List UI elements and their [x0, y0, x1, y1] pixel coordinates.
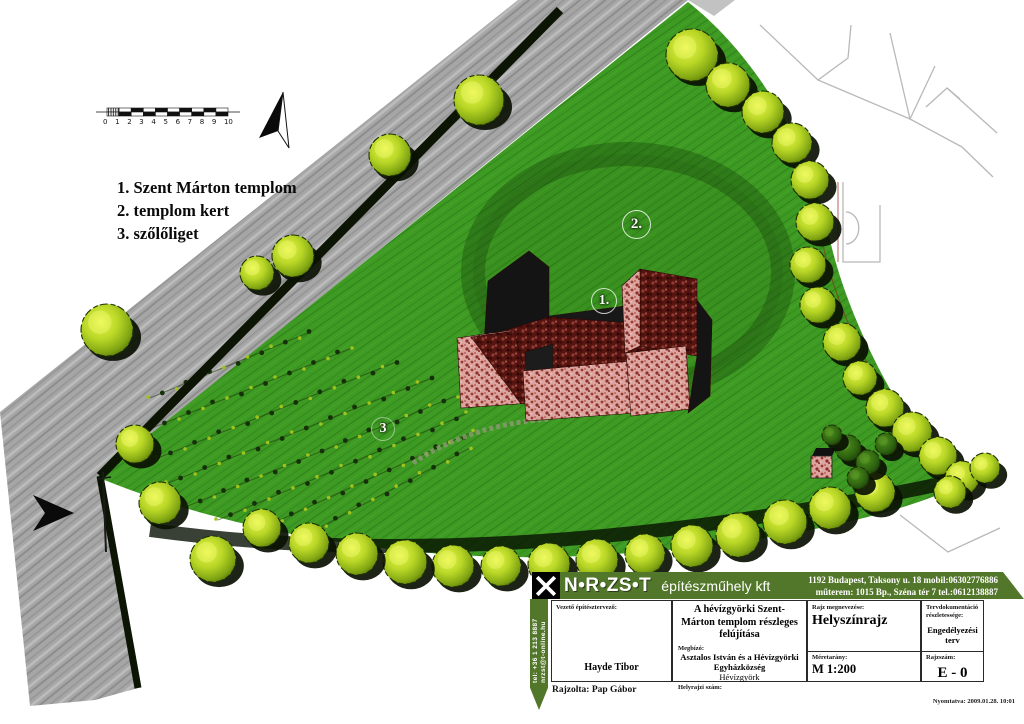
vine-plant [311, 360, 316, 365]
vine-plant [456, 395, 460, 399]
company-logo-text: N•R•ZS•T [564, 575, 651, 597]
contact-strip-tel: tel: +36 1 213 8887 [532, 603, 539, 683]
scale-cell [216, 112, 228, 116]
vine-plant [236, 361, 241, 366]
scale-label: 9 [212, 118, 216, 126]
vine-plant [368, 455, 372, 459]
vine-plant [279, 405, 283, 409]
scale-cell [168, 108, 180, 112]
legend-item: 1. Szent Márton templom [117, 176, 297, 199]
vine-plant [255, 415, 259, 419]
vine-plant [373, 473, 377, 477]
vine-plant [193, 472, 197, 476]
scale-label: 10 [224, 118, 233, 126]
vine-plant [356, 502, 361, 507]
scale-label: 0 [103, 118, 107, 126]
vine-plant [269, 411, 274, 416]
contact-strip: tel: +36 1 213 8887 nrzst@t-online.hu [530, 599, 548, 710]
vine-plant [454, 452, 459, 457]
vine-plant [280, 436, 285, 441]
vine-plant [263, 381, 268, 386]
vine-plant [441, 399, 446, 404]
north-arrow-icon [259, 92, 289, 148]
vine-plant [198, 499, 203, 504]
scale-label: 4 [151, 118, 155, 126]
scale-label: 6 [176, 118, 180, 126]
vine-plant [371, 371, 376, 376]
vine-plant [273, 470, 278, 475]
scale-label: 5 [163, 118, 167, 126]
vine-plant [339, 464, 343, 468]
vine-plant [431, 465, 436, 470]
vine-plant [350, 484, 354, 488]
address-line1: 1192 Budapest, Taksony u. 18 mobil:06302… [808, 574, 998, 586]
vine-plant [446, 460, 450, 464]
scale-cell [155, 108, 167, 112]
vine-plant [177, 417, 181, 421]
vine-plant [289, 511, 294, 516]
project-box: A hévízgyörki Szent-Márton templom részl… [672, 600, 807, 682]
legend-item: 3. szőlőliget [117, 222, 297, 245]
vine-plant [334, 445, 338, 449]
vine-plant [317, 389, 322, 394]
scale-cell [204, 112, 216, 116]
vine-plant [333, 516, 338, 521]
vine-plant [296, 459, 301, 464]
drawing-name: Helyszínrajz [812, 613, 916, 629]
outbuilding [811, 448, 836, 478]
scale-cell [107, 108, 119, 112]
vine-plant [207, 436, 211, 440]
vine-plant [304, 507, 308, 511]
lead-architect-label: Vezető építésztervező: [556, 604, 667, 612]
vine-plant [340, 491, 345, 496]
scale-cell [192, 108, 204, 112]
vine-plant [221, 488, 226, 493]
vine-plant [392, 444, 396, 448]
client-name: Asztalos István és a Hévízgyörki Egyházk… [678, 652, 801, 672]
project-title: A hévízgyörki Szent-Márton templom részl… [678, 604, 801, 642]
vine-plant [405, 386, 410, 391]
vine-plant [239, 392, 244, 397]
vine-plant [266, 441, 270, 445]
scale-cell [107, 112, 119, 116]
contact-strip-email: nrzst@t-online.hu [540, 603, 547, 683]
vine-plant [146, 395, 150, 399]
roof-plane [626, 346, 690, 416]
vine-plant [283, 340, 288, 345]
vine-plant [201, 407, 205, 411]
scale-label: 2 [127, 118, 131, 126]
vine-plant [259, 474, 263, 478]
vine-plant [202, 465, 207, 470]
vine-plant [216, 429, 221, 434]
vine-plant [309, 397, 313, 401]
plan-label-vineyard: 3 [371, 417, 395, 441]
vine-plant [217, 462, 221, 466]
vine-plant [245, 421, 250, 426]
vine-plant [333, 386, 337, 390]
scale-cell [143, 112, 155, 116]
vine-plant [328, 415, 333, 420]
vine-plant [416, 380, 420, 384]
vine-plant [231, 426, 235, 430]
legend: 1. Szent Márton templom2. templom kert3.… [117, 176, 297, 245]
company-name: építészműhely kft [661, 578, 770, 594]
scale-cell [216, 108, 228, 112]
vine-plant [324, 524, 328, 528]
lead-architect-name: Hayde Tibor [552, 662, 671, 673]
vine-plant [341, 379, 346, 384]
plan-label-church: 1. [591, 288, 617, 314]
vine-plant [256, 447, 261, 452]
vine-plant [315, 475, 319, 479]
scale-bar [96, 108, 240, 116]
vine-plant [168, 451, 173, 456]
vine-plant [381, 397, 386, 402]
doc-detail-label: Tervdokumentáció részletessége: [926, 604, 979, 619]
vine-plant [242, 451, 246, 455]
vine-plant [395, 360, 400, 365]
vine-plant [236, 485, 240, 489]
vine-plant [353, 459, 358, 464]
vine-plant [273, 375, 277, 379]
vine-plant [357, 375, 361, 379]
scale-cell [192, 112, 204, 116]
company-logo-icon [532, 572, 560, 599]
vine-plant [319, 422, 323, 426]
legend-item: 2. templom kert [117, 199, 297, 222]
vine-plant [290, 430, 294, 434]
vine-plant [214, 517, 218, 521]
scale-cell [204, 108, 216, 112]
vine-plant [305, 481, 310, 486]
vine-plant [293, 400, 298, 405]
vine-plant [350, 346, 354, 350]
vine-plant [312, 500, 317, 505]
titleblock-header: N•R•ZS•T építészműhely kft 1192 Budapest… [532, 572, 1024, 599]
address-line2: műterem: 1015 Bp., Széna tér 7 tel.:0612… [808, 586, 998, 598]
vine-plant [320, 449, 325, 454]
vine-plant [287, 371, 292, 376]
scale-value: M 1:200 [812, 662, 916, 677]
scale-label: 1 [115, 118, 119, 126]
vine-plant [225, 396, 229, 400]
vine-plant [162, 421, 167, 426]
scale-label: 7 [188, 118, 192, 126]
scale-cell [155, 112, 167, 116]
vine-plant [469, 447, 473, 451]
vine-plant [428, 403, 432, 407]
vine-plant [213, 495, 217, 499]
vine-plant [418, 471, 422, 475]
scale-bar-labels: 012345678910 [103, 118, 233, 126]
vine-plant [404, 414, 408, 418]
vine-plant [291, 486, 295, 490]
vine-plant [394, 484, 398, 488]
vine-plant [249, 386, 253, 390]
vine-plant [302, 367, 306, 371]
scale-cell [143, 108, 155, 112]
vine-plant [326, 357, 330, 361]
vine-plant [307, 329, 312, 334]
vine-plant [358, 435, 362, 439]
vine-plant [327, 496, 331, 500]
vine-plant [364, 479, 369, 484]
drawing-number-label: Rajzszám: [926, 654, 979, 662]
roof-plane [523, 361, 635, 421]
drawing-name-label: Rajz megnevezése: [812, 604, 916, 612]
vine-plant [395, 420, 400, 425]
scale-label: 3 [139, 118, 143, 126]
vine-plant [175, 387, 179, 391]
vine-plant [192, 440, 197, 445]
vine-plant [243, 509, 247, 513]
scale-cell [131, 108, 143, 112]
parcel-label: Helyrajzi szám: [678, 684, 801, 692]
vine-plant [385, 492, 390, 497]
vine-plant [267, 497, 271, 501]
vine-plant [283, 464, 287, 468]
vine-plant [454, 416, 459, 421]
vine-plant [381, 365, 385, 369]
vine-plant [440, 421, 444, 425]
vine-plant [276, 490, 281, 495]
vine-plant [304, 426, 309, 431]
vine-plant [430, 428, 435, 433]
site-plan-page: 012345678910 1. Szent Márton templom2. t… [0, 0, 1024, 724]
vine-plant [430, 376, 435, 381]
doc-detail-value: Engedélyezési terv [926, 626, 979, 645]
scale-cell [168, 112, 180, 116]
vine-plant [402, 464, 406, 468]
scale-cell [119, 112, 131, 116]
vine-plant [348, 511, 352, 515]
vine-plant [306, 453, 310, 457]
vine-plant [228, 512, 233, 517]
roof-plane [640, 269, 697, 356]
vine-plant [401, 436, 406, 441]
vine-plant [367, 401, 371, 405]
vine-plant [210, 400, 215, 405]
vine-plant [329, 470, 334, 475]
scale-cell [131, 112, 143, 116]
vine-plant [416, 433, 420, 437]
lead-architect-box: Vezető építésztervező: Hayde Tibor [551, 600, 672, 682]
vine-plant [387, 467, 392, 472]
vine-plant [377, 448, 382, 453]
scale-cell [180, 108, 192, 112]
vine-plant [245, 478, 250, 483]
vine-plant [186, 410, 191, 415]
client-label: Megbízó: [678, 645, 801, 653]
doc-detail-box: Tervdokumentáció részletessége: Engedély… [921, 600, 984, 682]
vine-plant [391, 391, 395, 395]
vine-plant [335, 350, 340, 355]
company-address: 1192 Budapest, Taksony u. 18 mobil:06302… [808, 574, 1024, 598]
vine-plant [352, 405, 357, 410]
drawing-name-box: Rajz megnevezése: Helyszínrajz Méretarán… [807, 600, 921, 682]
vine-plant [408, 478, 413, 483]
scale-label-field: Méretarány: [812, 654, 916, 662]
vine-plant [222, 366, 226, 370]
vine-plant [246, 355, 250, 359]
vine-plant [269, 344, 273, 348]
vine-plant [178, 476, 183, 481]
vine-plant [160, 391, 165, 396]
vine-plant [252, 501, 257, 506]
plan-label-garden: 2. [622, 210, 651, 239]
vine-plant [464, 410, 468, 414]
vine-plant [226, 455, 231, 460]
vine-plant [259, 350, 264, 355]
scale-cell [180, 112, 192, 116]
vine-plant [343, 438, 348, 443]
scale-label: 8 [200, 118, 204, 126]
vine-plant [343, 412, 347, 416]
scale-cell [119, 108, 131, 112]
drawing-number: E - 0 [926, 665, 979, 682]
vine-plant [183, 447, 187, 451]
printed-note: Nyomtatva: 2009.01.28. 10:01 [825, 698, 1015, 705]
client-city: Hévízgyörk [678, 672, 801, 682]
vine-plant [298, 336, 302, 340]
vine-plant [371, 498, 375, 502]
vine-plant [418, 409, 423, 414]
drawn-by: Rajzolta: Pap Gábor [552, 685, 636, 695]
